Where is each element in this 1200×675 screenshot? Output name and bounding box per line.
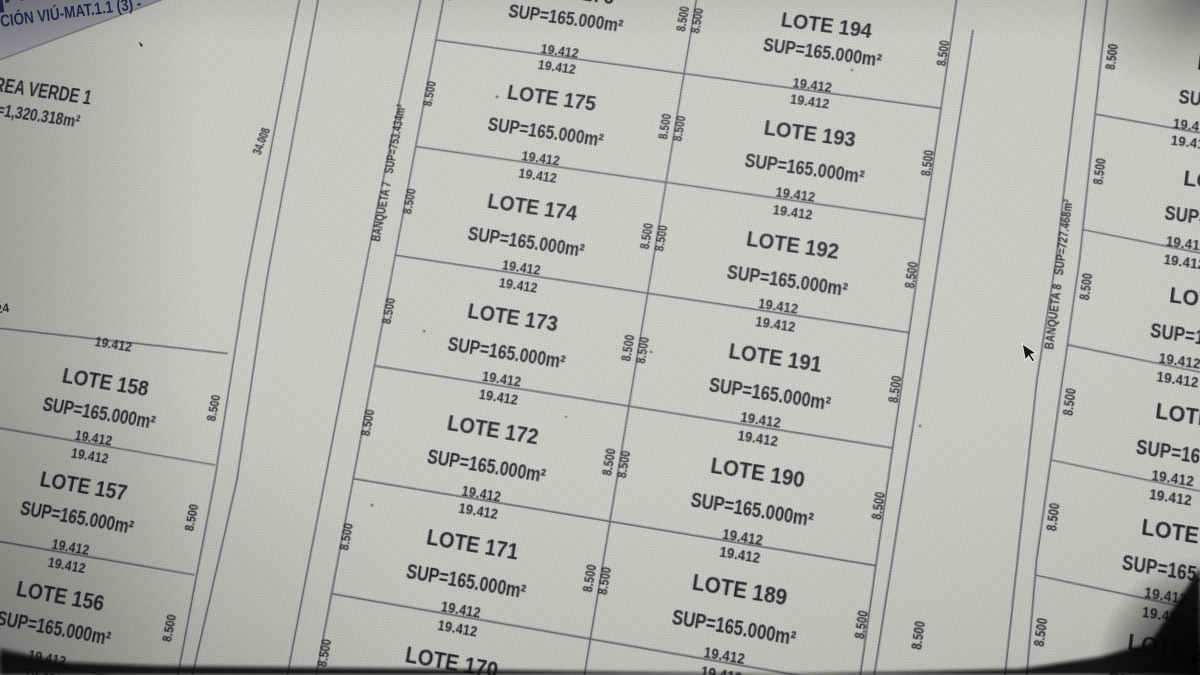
svg-text:8.500: 8.500	[1102, 42, 1121, 70]
svg-text:8.500: 8.500	[1059, 387, 1079, 417]
svg-text:8.500: 8.500	[1043, 501, 1063, 532]
svg-text:8.500: 8.500	[1076, 272, 1096, 302]
svg-text:8.500: 8.500	[1090, 157, 1110, 186]
svg-text:8.500: 8.500	[1030, 616, 1050, 648]
